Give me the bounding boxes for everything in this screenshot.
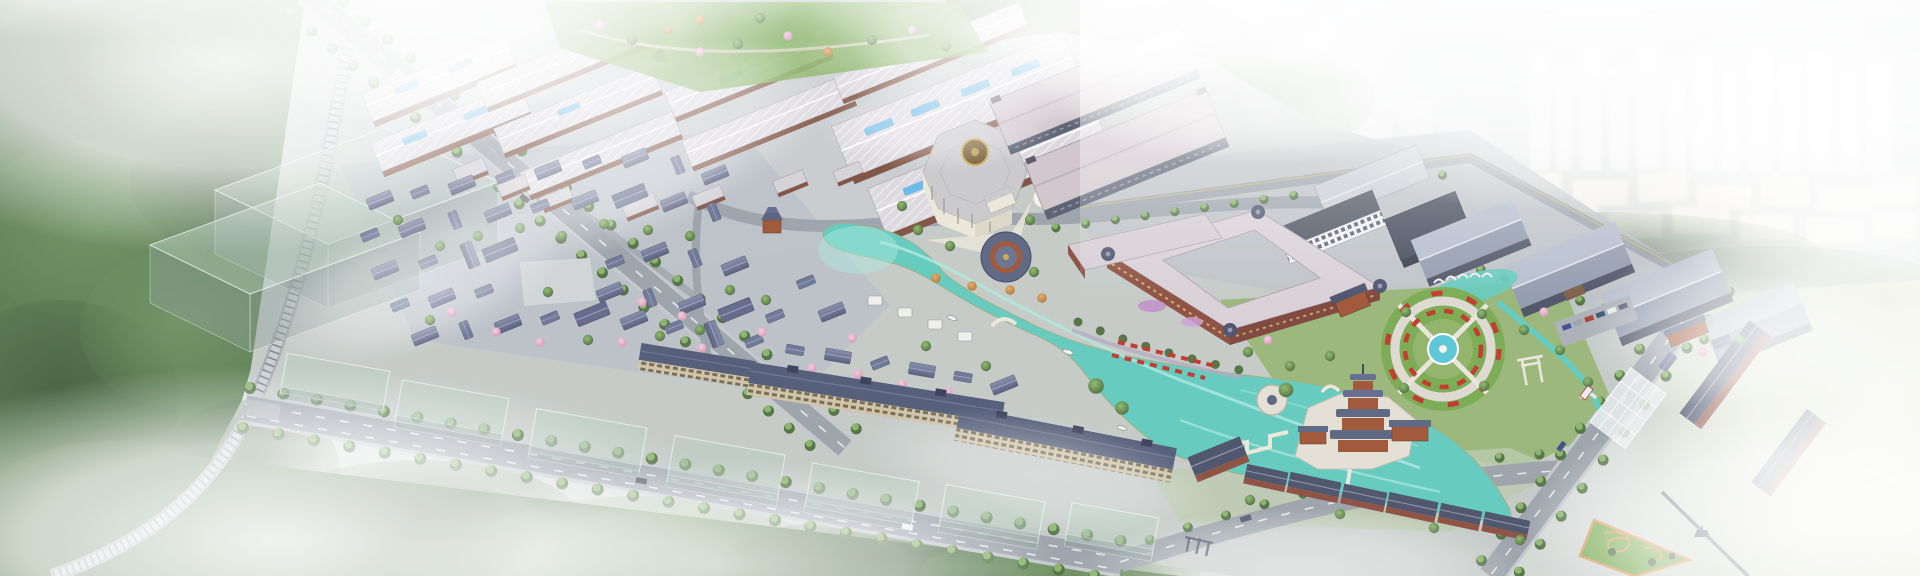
rendering-stage bbox=[0, 0, 1920, 576]
masterplan-rendering bbox=[0, 0, 1920, 576]
fountain-plaza bbox=[1381, 287, 1505, 411]
village-plaza bbox=[520, 258, 596, 306]
